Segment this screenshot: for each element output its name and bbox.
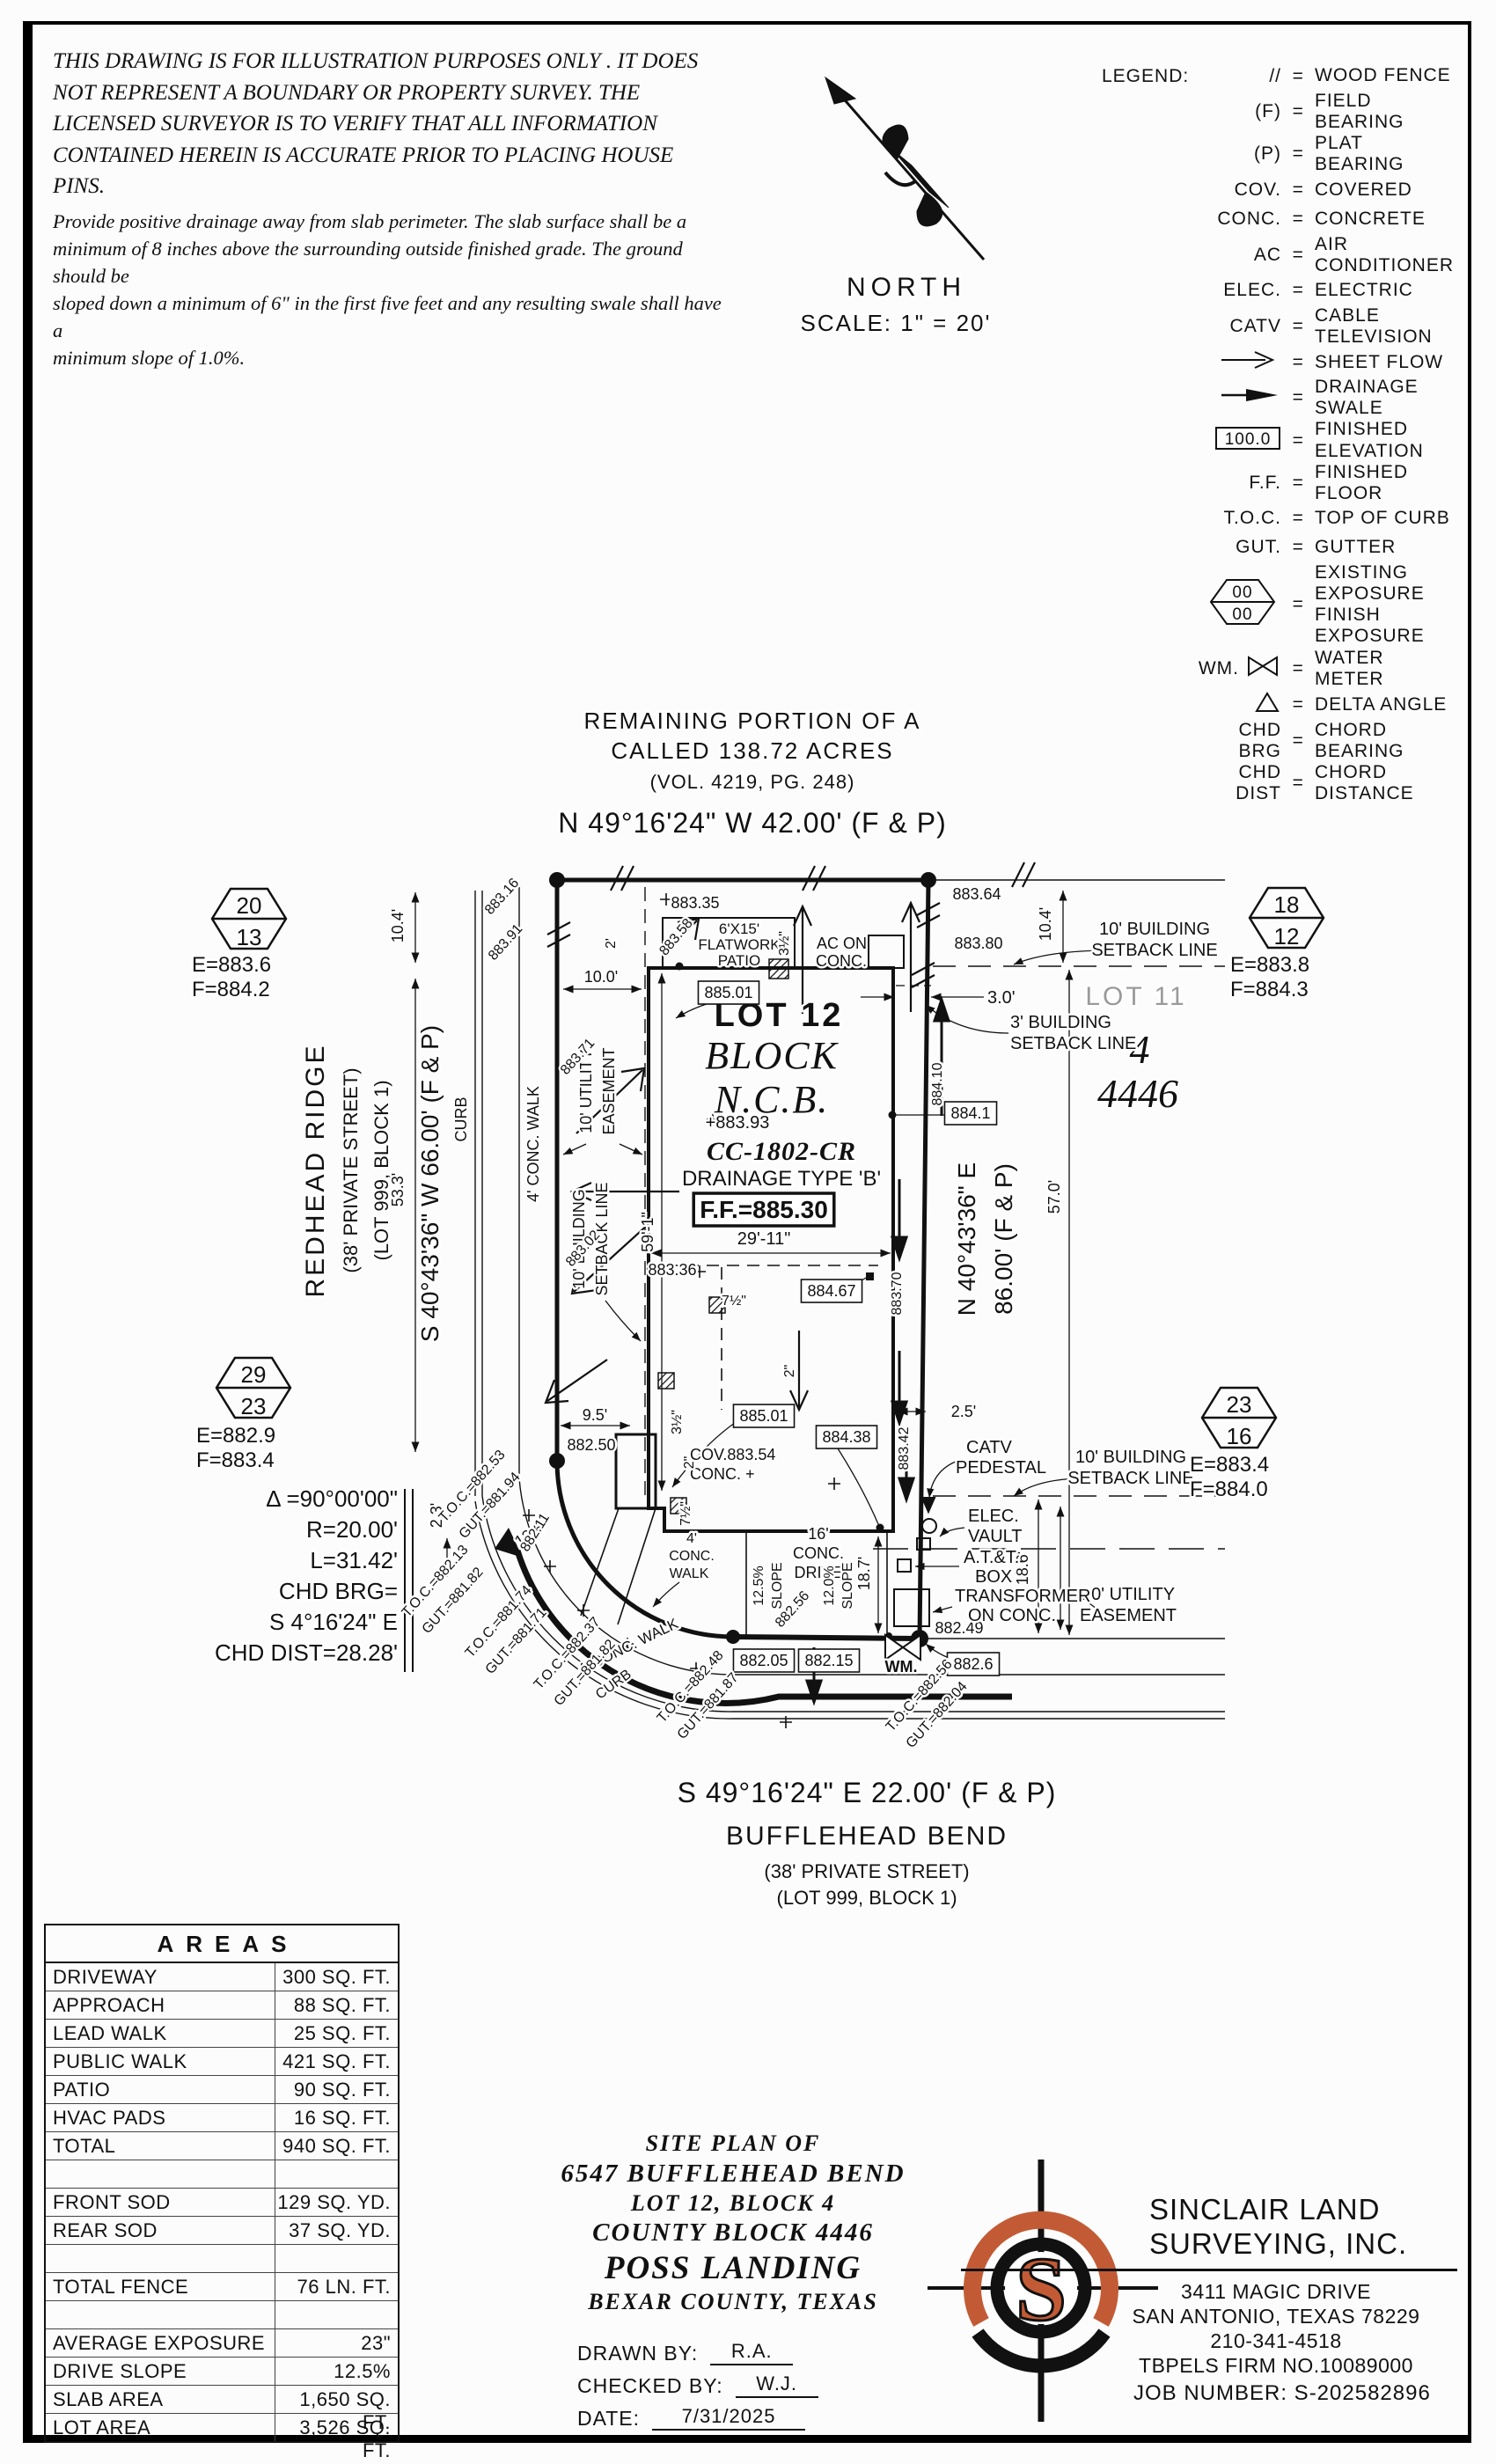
firm-phone: 210-341-4518 [1091, 2328, 1461, 2353]
legend-symbol-cell: CHD BRG [1193, 720, 1281, 762]
legend-symbol: GUT. [1236, 537, 1281, 558]
legend-equals: = [1281, 473, 1315, 494]
plan-label: CHD DIST=28.28' [215, 1639, 398, 1666]
areas-row-label: FRONT SOD [46, 2189, 275, 2216]
plan-label: 883.16 [482, 876, 522, 918]
legend-row: CHD BRG=CHORD BEARING [1102, 720, 1457, 762]
legend-label: DRAINAGE SWALE [1315, 377, 1457, 419]
checked-by-value: W.J. [736, 2372, 818, 2398]
areas-table-row: AVERAGE EXPOSURE23" [46, 2329, 398, 2358]
areas-row-label: APPROACH [46, 1991, 275, 2019]
legend-symbol-cell: 100.0 [1193, 426, 1281, 456]
plan-label: L=31.42' [310, 1547, 398, 1573]
legend-row: =DRAINAGE SWALE [1102, 377, 1457, 419]
plan-label: DRAINAGE TYPE 'B' [682, 1167, 881, 1191]
areas-row-value: 940 SQ. FT. [275, 2132, 398, 2160]
legend-symbol: F.F. [1249, 473, 1281, 494]
plan-label: CURB [452, 1096, 470, 1141]
firm-street: 3411 MAGIC DRIVE [1091, 2279, 1461, 2304]
legend-symbol-cell [1193, 350, 1281, 375]
plan-label: CALLED 138.72 ACRES [611, 737, 893, 764]
plan-label: E=883.8 [1230, 953, 1309, 977]
legend-title: LEGEND: [1102, 66, 1193, 87]
legend-label: CABLE TELEVISION [1315, 305, 1457, 348]
title-line: SITE PLAN OF [526, 2130, 940, 2159]
plan-label: 7½" [678, 1501, 693, 1526]
plan-label: SETBACK LINE [1091, 941, 1217, 960]
plan-label: AC ON [817, 935, 867, 952]
plan-label: E=882.9 [196, 1424, 275, 1448]
plan-label: WALK [670, 1566, 709, 1581]
plan-label: (38' PRIVATE STREET) [764, 1860, 969, 1882]
plan-label: 885.01 [739, 1407, 788, 1425]
areas-table: AREAS DRIVEWAY300 SQ. FT.APPROACH88 SQ. … [44, 1924, 400, 2443]
title-line: COUNTY BLOCK 4446 [526, 2218, 940, 2248]
legend-equals: = [1281, 508, 1315, 529]
legend-label-text: FIELD BEARING [1315, 91, 1457, 133]
plan-label: 883.35 [671, 894, 719, 912]
legend-row: 100.0=FINISHED ELEVATION [1102, 419, 1457, 461]
areas-table-row: TOTAL FENCE76 LN. FT. [46, 2273, 398, 2301]
legend-label: CHORD DISTANCE [1315, 762, 1457, 804]
legend-symbol-cell: // [1193, 66, 1281, 87]
legend-label-text: PLAT BEARING [1315, 133, 1457, 175]
plan-label: 10.0' [584, 968, 618, 986]
plan-label: SCALE: 1" = 20' [801, 310, 992, 336]
logo-letter: S [1016, 2239, 1067, 2340]
legend-row: CONC.=CONCRETE [1102, 205, 1457, 234]
legend-row: ELEC.=ELECTRIC [1102, 276, 1457, 305]
plan-label: PEDESTAL [956, 1458, 1046, 1478]
plan-label: 882.15 [804, 1652, 853, 1669]
plan-label: (38' PRIVATE STREET) [340, 1067, 362, 1272]
areas-row-value [275, 2245, 398, 2272]
legend-equals: = [1281, 316, 1315, 337]
legend-label: WATER METER [1315, 648, 1457, 690]
legend-row: LEGEND://=WOOD FENCE [1102, 62, 1457, 91]
catv-pedestal-icon [922, 1498, 935, 1512]
areas-row-label [46, 2160, 275, 2188]
legend-symbol: WM. [1199, 658, 1239, 679]
title-line: LOT 12, BLOCK 4 [526, 2189, 940, 2218]
areas-row-value [275, 2301, 398, 2328]
legend-row: =SHEET FLOW [1102, 348, 1457, 377]
legend-symbol-cell: COV. [1193, 180, 1281, 201]
areas-row-value: 23" [275, 2329, 398, 2357]
legend-symbol: ELEC. [1223, 280, 1281, 301]
areas-table-row: DRIVEWAY300 SQ. FT. [46, 1963, 398, 1991]
legend-row: CATV=CABLE TELEVISION [1102, 305, 1457, 348]
areas-row-label: TOTAL FENCE [46, 2273, 275, 2300]
legend-equals: = [1281, 66, 1315, 87]
att-box-icon [898, 1559, 911, 1572]
legend-label: FIELD BEARING [1315, 91, 1457, 133]
plan-label: SETBACK LINE [1010, 1034, 1136, 1053]
legend-symbol: CHD DIST [1193, 762, 1281, 804]
plan-label: S 40°43'36" W 66.00' (F & P) [416, 1025, 444, 1342]
legend-symbol: COV. [1235, 180, 1281, 201]
legend-label-text: AIR CONDITIONER [1315, 234, 1457, 276]
plan-label: 883.70 [890, 1272, 905, 1315]
elec-vault-icon [922, 1519, 936, 1533]
legend-row: (P)=PLAT BEARING [1102, 133, 1457, 175]
firm-address: 3411 MAGIC DRIVE SAN ANTONIO, TEXAS 7822… [1091, 2279, 1461, 2378]
legend-row: AC=AIR CONDITIONER [1102, 234, 1457, 276]
legend-label-text: TOP OF CURB [1315, 508, 1457, 529]
legend-symbol: AC [1254, 245, 1281, 266]
firm-divider [961, 2269, 1457, 2271]
areas-row-label: PATIO [46, 2076, 275, 2103]
legend-label: SHEET FLOW [1315, 352, 1457, 373]
firm-registration: TBPELS FIRM NO.10089000 [1091, 2353, 1461, 2378]
plan-label: Δ =90°00'00" [266, 1485, 398, 1512]
legend-label-text: FINISHED FLOOR [1315, 462, 1457, 504]
plan-label: (VOL. 4219, PG. 248) [650, 771, 855, 793]
firm-name: SINCLAIR LAND SURVEYING, INC. [1149, 2193, 1466, 2262]
plan-label: 6'X15' [719, 920, 759, 937]
legend-label-text: FINISH EXPOSURE [1315, 605, 1457, 647]
areas-row-value: 37 SQ. YD. [275, 2217, 398, 2244]
finished-elevation-box-icon: 100.0 [1214, 426, 1281, 456]
areas-row-label [46, 2245, 275, 2272]
legend-equals: = [1281, 658, 1315, 679]
plan-label: CHD BRG= [279, 1578, 398, 1604]
legend-label: PLAT BEARING [1315, 133, 1457, 175]
plan-label: 885.01 [704, 984, 752, 1001]
legend-symbol-cell: WM. [1193, 654, 1281, 684]
site-plan-sheet: { "disclaimer": { "para1": "THIS DRAWING… [0, 0, 1496, 2464]
legend-row: CHD DIST=CHORD DISTANCE [1102, 762, 1457, 804]
areas-row-value: 25 SQ. FT. [275, 2020, 398, 2047]
areas-table-row: DRIVE SLOPE12.5% [46, 2358, 398, 2386]
plan-label: 12.5% [752, 1566, 766, 1605]
legend-symbol: CATV [1230, 316, 1281, 337]
plan-label: 86.00' (F & P) [990, 1163, 1017, 1315]
areas-table-row [46, 2245, 398, 2273]
legend-label-text: ELECTRIC [1315, 280, 1457, 301]
plan-label: 29'-11" [737, 1229, 791, 1249]
legend-row: GUT.=GUTTER [1102, 533, 1457, 562]
legend-equals: = [1281, 280, 1315, 301]
ac-pad [869, 935, 904, 968]
areas-row-value: 421 SQ. FT. [275, 2048, 398, 2075]
plan-label: 3½" [670, 1410, 685, 1434]
plan-label: F=883.4 [196, 1448, 275, 1472]
plan-label: 883.36 [648, 1261, 696, 1279]
plan-label: NORTH [847, 273, 966, 302]
pin-finish: 13 [237, 924, 262, 950]
plan-label: F=884.2 [192, 978, 270, 1001]
legend-equals: = [1281, 537, 1315, 558]
legend-equals: = [1281, 180, 1315, 201]
plan-label: E=883.6 [192, 953, 271, 977]
plan-label: CONC. [816, 952, 867, 970]
legend-row: =DELTA ANGLE [1102, 690, 1457, 720]
areas-table-row: PUBLIC WALK421 SQ. FT. [46, 2048, 398, 2076]
plan-label: 882.50 [567, 1436, 615, 1454]
legend-row: (F)=FIELD BEARING [1102, 91, 1457, 133]
legend-equals: = [1281, 101, 1315, 122]
plan-label: N 40°43'36" E [953, 1162, 980, 1316]
plan-label: 2" [782, 1365, 797, 1378]
transformer-pad-icon [894, 1589, 929, 1626]
plan-label: 3' BUILDING [1010, 1013, 1111, 1032]
disclaimer-notes: THIS DRAWING IS FOR ILLUSTRATION PURPOSE… [53, 46, 722, 371]
plan-label: 884.1 [950, 1104, 990, 1122]
county-line: BEXAR COUNTY, TEXAS [526, 2288, 940, 2317]
legend-label-text: WOOD FENCE [1315, 65, 1457, 86]
legend-symbol-cell: T.O.C. [1193, 508, 1281, 529]
areas-row-value: 300 SQ. FT. [275, 1963, 398, 1991]
plan-label: S 4°16'24" E [269, 1609, 398, 1635]
areas-row-label: SLAB AREA [46, 2386, 275, 2413]
pin-existing: 18 [1274, 891, 1300, 918]
plan-label: 3½" [777, 931, 792, 956]
areas-table-row: REAR SOD37 SQ. YD. [46, 2217, 398, 2245]
plan-label: F=884.3 [1230, 978, 1309, 1001]
legend-equals: = [1281, 773, 1315, 794]
firm-city: SAN ANTONIO, TEXAS 78229 [1091, 2304, 1461, 2328]
legend-label-text: SHEET FLOW [1315, 352, 1457, 373]
legend-label-text: CHORD BEARING [1315, 720, 1457, 762]
legend-label-text: CONCRETE [1315, 209, 1457, 230]
legend-symbol-cell: ELEC. [1193, 280, 1281, 301]
legend-label: FINISHED ELEVATION [1315, 419, 1457, 461]
plan-label: R=20.00' [306, 1516, 398, 1543]
areas-table-row: LOT AREA3,526 SQ. FT. [46, 2414, 398, 2441]
legend-equals: = [1281, 730, 1315, 752]
north-arrow-icon [825, 77, 984, 260]
legend-label: EXISTING EXPOSUREFINISH EXPOSURE [1315, 562, 1457, 648]
plan-label: COV.883.54 [690, 1446, 775, 1463]
plan-label: 4' [686, 1531, 697, 1546]
checked-by-label: CHECKED BY: [577, 2374, 723, 2398]
pin-finish: 23 [241, 1393, 267, 1419]
legend-label: AIR CONDITIONER [1315, 234, 1457, 276]
legend-label-text: COVERED [1315, 180, 1457, 201]
legend-symbol: T.O.C. [1223, 508, 1281, 529]
plan-label: REMAINING PORTION OF A [583, 708, 920, 734]
areas-table-row: SLAB AREA1,650 SQ. FT. [46, 2386, 398, 2414]
areas-row-label: REAR SOD [46, 2217, 275, 2244]
legend-symbol: (P) [1254, 143, 1281, 165]
plan-label: A.T.&T. [964, 1548, 1019, 1567]
plan-label: SETBACK LINE [1067, 1469, 1193, 1488]
legend-symbol-cell [1193, 690, 1281, 720]
signoff-block: DRAWN BY:R.A. CHECKED BY:W.J. DATE:7/31/… [526, 2340, 940, 2431]
plan-label: 3.0' [987, 988, 1016, 1008]
plan-label: ELEC. [968, 1507, 1019, 1526]
legend-row: F.F.=FINISHED FLOOR [1102, 462, 1457, 504]
legend-symbol: // [1269, 66, 1281, 87]
exposure-hexagon-icon: 0000 [1204, 573, 1281, 636]
plan-label: BLOCK [705, 1034, 839, 1077]
areas-table-row: PATIO90 SQ. FT. [46, 2076, 398, 2104]
job-number: JOB NUMBER: S-202582896 [1133, 2381, 1431, 2406]
legend-symbol-cell: F.F. [1193, 473, 1281, 494]
plan-label: CONC. [793, 1544, 844, 1562]
legend-equals: = [1281, 143, 1315, 165]
legend-equals: = [1281, 387, 1315, 408]
legend-label: TOP OF CURB [1315, 508, 1457, 529]
areas-row-label: AVERAGE EXPOSURE [46, 2329, 275, 2357]
plan-label: 10' UTILITY [1082, 1585, 1175, 1604]
sheet-flow-arrow-icon [1220, 350, 1281, 375]
legend-label: ELECTRIC [1315, 280, 1457, 301]
areas-row-value [275, 2160, 398, 2188]
plan-label: SLOPE [840, 1562, 855, 1609]
plan-label: ON CONC. [968, 1606, 1056, 1625]
areas-table-row [46, 2160, 398, 2189]
plan-label: 53.3' [389, 1173, 407, 1206]
legend-label: CHORD BEARING [1315, 720, 1457, 762]
legend-label: DELTA ANGLE [1315, 694, 1457, 715]
legend-symbol-cell: 0000 [1193, 573, 1281, 636]
plan-label: 2" [682, 1456, 697, 1470]
plan-label: 10.4' [389, 909, 407, 942]
plan-label: 882.6 [953, 1655, 993, 1673]
plan-label: CC-1802-CR [707, 1137, 856, 1166]
areas-table-row [46, 2301, 398, 2329]
drawn-by-label: DRAWN BY: [577, 2342, 698, 2365]
legend-symbol-cell: (P) [1193, 143, 1281, 165]
plan-label: CATV [966, 1438, 1013, 1457]
areas-row-value: 16 SQ. FT. [275, 2104, 398, 2131]
plan-label: 10' BUILDING [1099, 920, 1210, 939]
pin-existing: 23 [1227, 1391, 1252, 1418]
legend: LEGEND://=WOOD FENCE(F)=FIELD BEARING(P)… [1102, 62, 1457, 804]
areas-table-row: FRONT SOD129 SQ. YD. [46, 2189, 398, 2217]
plan-label: EASEMENT [600, 1047, 618, 1134]
plan-label: 882.05 [739, 1652, 788, 1669]
plan-label: 16' [808, 1525, 828, 1543]
legend-symbol-cell: CHD DIST [1193, 762, 1281, 804]
legend-equals: = [1281, 594, 1315, 615]
plan-label: 4' CONC. WALK [524, 1086, 542, 1202]
svg-text:00: 00 [1232, 583, 1252, 602]
subdivision-name: POSS LANDING [526, 2249, 940, 2288]
plan-label: 18.7' [855, 1557, 873, 1590]
legend-equals: = [1281, 694, 1315, 715]
legend-row: WM.=WATER METER [1102, 648, 1457, 690]
drawn-by-value: R.A. [710, 2340, 793, 2365]
date-value: 7/31/2025 [652, 2405, 805, 2431]
plan-label: 884.38 [822, 1428, 870, 1446]
areas-row-value: 12.5% [275, 2358, 398, 2385]
legend-label-text: EXISTING EXPOSURE [1315, 562, 1457, 605]
plan-label: S 49°16'24" E 22.00' (F & P) [678, 1777, 1057, 1808]
legend-label: COVERED [1315, 180, 1457, 201]
plan-label: TRANSFORMER [955, 1587, 1090, 1606]
legend-symbol-cell: AC [1193, 245, 1281, 266]
plan-label: 884.67 [807, 1282, 855, 1300]
plan-label: 2' [604, 938, 619, 949]
legend-symbol-cell: CATV [1193, 316, 1281, 337]
legend-label-text: CHORD DISTANCE [1315, 762, 1457, 804]
plan-label: FLATWORK [698, 936, 781, 953]
plan-label: BOX [975, 1567, 1012, 1587]
legend-label-text: GUTTER [1315, 537, 1457, 558]
legend-label-text: DRAINAGE SWALE [1315, 377, 1457, 419]
title-block: SITE PLAN OF 6547 BUFFLEHEAD BEND LOT 12… [526, 2130, 940, 2438]
areas-row-label: PUBLIC WALK [46, 2048, 275, 2075]
legend-equals: = [1281, 430, 1315, 451]
plan-label: CONC. + [690, 1465, 755, 1483]
plan-label: 883.42 [897, 1426, 912, 1470]
water-meter-icon [1244, 654, 1281, 684]
areas-row-value: 88 SQ. FT. [275, 1991, 398, 2019]
pin-finish: 12 [1274, 923, 1300, 950]
areas-row-value: 76 LN. FT. [275, 2273, 398, 2300]
plan-label: EASEMENT [1080, 1606, 1177, 1625]
areas-row-label: LEAD WALK [46, 2020, 275, 2047]
pin-existing: 29 [241, 1361, 267, 1388]
plan-label: N 49°16'24" W 42.00' (F & P) [558, 807, 946, 839]
legend-label: FINISHED FLOOR [1315, 462, 1457, 504]
plan-label: BUFFLEHEAD BEND [726, 1822, 1008, 1851]
legend-equals: = [1281, 209, 1315, 230]
legend-symbol: (F) [1255, 101, 1281, 122]
plan-label: SLOPE [770, 1562, 785, 1609]
plan-label: 10' BUILDING [1075, 1448, 1186, 1467]
areas-row-label [46, 2301, 275, 2328]
plan-label: E=883.4 [1190, 1453, 1269, 1477]
plan-label: 2.5' [951, 1403, 976, 1420]
firm-name-line2: SURVEYING, INC. [1149, 2227, 1466, 2262]
areas-row-value: 129 SQ. YD. [275, 2189, 398, 2216]
plan-label: LOT 11 [1085, 982, 1186, 1011]
drainage-note-paragraph: Provide positive drainage away from slab… [53, 208, 722, 371]
plan-label: VAULT [968, 1527, 1023, 1546]
legend-label: GUTTER [1315, 537, 1457, 558]
plan-label: WM. [885, 1658, 918, 1676]
areas-row-label: LOT AREA [46, 2414, 275, 2441]
legend-symbol-cell: (F) [1193, 101, 1281, 122]
legend-row: T.O.C.=TOP OF CURB [1102, 504, 1457, 533]
areas-row-value: 3,526 SQ. FT. [275, 2414, 398, 2441]
plan-label: 883.64 [952, 885, 1001, 903]
title-line: 6547 BUFFLEHEAD BEND [526, 2159, 940, 2189]
areas-row-label: DRIVEWAY [46, 1963, 275, 1991]
legend-equals: = [1281, 352, 1315, 373]
plan-label: REDHEAD RIDGE [301, 1043, 330, 1297]
plan-label: 4446 [1097, 1071, 1178, 1116]
plan-label: 57.0' [1045, 1180, 1063, 1214]
plan-label: 884.10 [930, 1062, 945, 1105]
areas-row-value: 1,650 SQ. FT. [275, 2386, 398, 2413]
areas-table-row: TOTAL940 SQ. FT. [46, 2132, 398, 2160]
plan-label: 12.0% [822, 1566, 837, 1605]
date-label: DATE: [577, 2407, 640, 2431]
legend-label: WOOD FENCE [1315, 65, 1457, 86]
legend-symbol: CONC. [1217, 209, 1281, 230]
legend-label-text: FINISHED ELEVATION [1315, 419, 1457, 461]
plan-label: 59'-1" [639, 1212, 656, 1252]
plan-label: +883.93 [706, 1113, 770, 1133]
legend-label-text: DELTA ANGLE [1315, 694, 1457, 715]
areas-table-row: APPROACH88 SQ. FT. [46, 1991, 398, 2020]
areas-row-value: 90 SQ. FT. [275, 2076, 398, 2103]
pin-finish: 16 [1227, 1423, 1252, 1449]
plan-label: CONC. [669, 1549, 715, 1564]
plan-label: 10.4' [1037, 907, 1054, 941]
areas-row-label: HVAC PADS [46, 2104, 275, 2131]
drainage-swale-arrow-icon [1220, 385, 1281, 410]
legend-label-text: CABLE TELEVISION [1315, 305, 1457, 348]
plan-label: (LOT 999, BLOCK 1) [776, 1887, 957, 1909]
plan-label: 9.5' [583, 1406, 607, 1424]
areas-table-title: AREAS [46, 1925, 398, 1963]
